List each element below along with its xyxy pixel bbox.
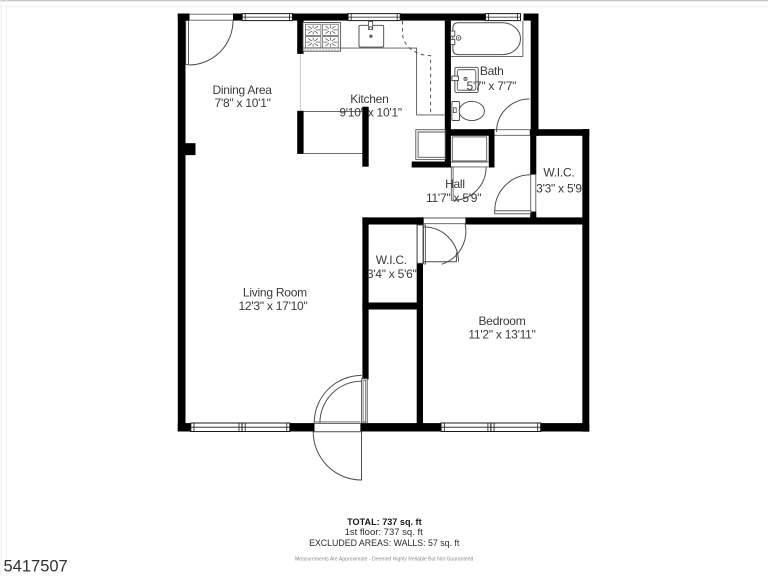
svg-text:Bedroom: Bedroom [479, 314, 526, 328]
svg-text:12'3" x 17'10": 12'3" x 17'10" [239, 299, 308, 313]
svg-text:11'2" x 13'11": 11'2" x 13'11" [468, 327, 535, 341]
svg-text:1st floor: 737 sq. ft: 1st floor: 737 sq. ft [345, 527, 424, 538]
svg-text:W.I.C.: W.I.C. [543, 166, 574, 180]
svg-text:3'3" x 5'9": 3'3" x 5'9" [536, 181, 586, 195]
svg-text:5417507: 5417507 [4, 558, 68, 576]
svg-text:Living Room: Living Room [243, 286, 307, 300]
svg-text:EXCLUDED AREAS: WALLS: 57 sq.: EXCLUDED AREAS: WALLS: 57 sq. ft [309, 538, 460, 548]
svg-text:9'10" x 10'1": 9'10" x 10'1" [339, 106, 402, 120]
svg-text:Dining Area: Dining Area [212, 83, 272, 97]
svg-text:5'7" x 7'7": 5'7" x 7'7" [466, 79, 516, 93]
svg-text:Hall: Hall [445, 177, 465, 191]
svg-text:7'8" x 10'1": 7'8" x 10'1" [215, 96, 271, 110]
svg-text:Measurements Are Approximate -: Measurements Are Approximate - Deemed Hi… [295, 556, 474, 562]
svg-text:Bath: Bath [480, 64, 504, 78]
svg-text:W.I.C.: W.I.C. [376, 253, 407, 267]
svg-text:Kitchen: Kitchen [350, 92, 388, 106]
svg-text:11'7" x 5'9": 11'7" x 5'9" [426, 191, 481, 205]
svg-text:3'4" x 5'6": 3'4" x 5'6" [367, 267, 417, 281]
svg-text:TOTAL: 737 sq. ft: TOTAL: 737 sq. ft [347, 517, 421, 527]
